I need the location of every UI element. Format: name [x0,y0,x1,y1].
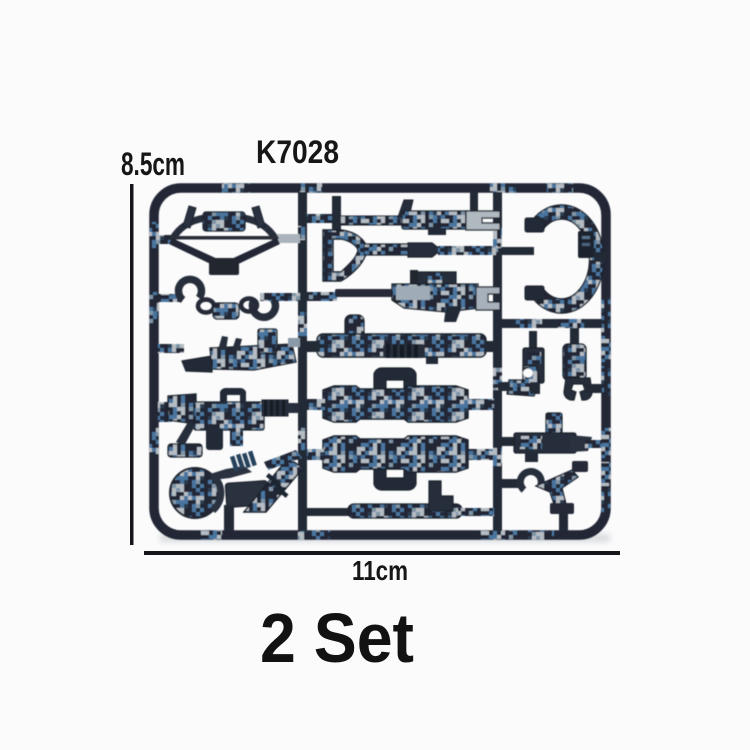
svg-text:8.5cm: 8.5cm [121,146,185,182]
svg-text:K7028: K7028 [256,134,339,170]
svg-text:11cm: 11cm [352,555,408,586]
svg-text:2 Set: 2 Set [260,599,414,677]
